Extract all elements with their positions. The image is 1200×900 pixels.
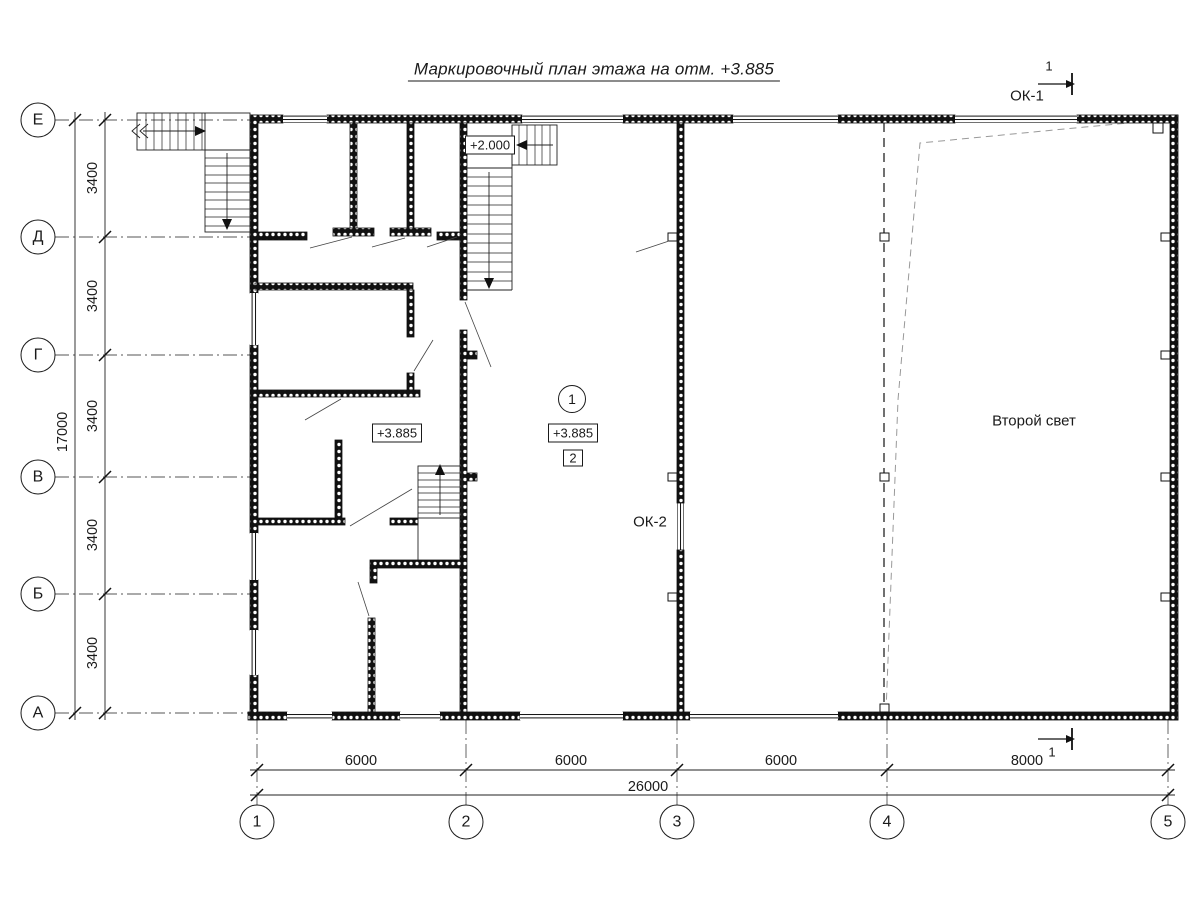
- pilasters: [668, 123, 1170, 712]
- room-marker-square: 2: [563, 450, 583, 467]
- axis-row-b: Б: [21, 577, 56, 612]
- dim-left-total: 17000: [56, 412, 71, 452]
- axis-col-4: 4: [870, 805, 905, 840]
- dim-bottom-seg-4: 8000: [1011, 754, 1043, 769]
- dim-left-seg-1: 3400: [86, 162, 101, 194]
- axis-row-g: Г: [21, 338, 56, 373]
- second-light-label: Второй свет: [992, 414, 1076, 429]
- elevation-mark-landing: +2.000: [465, 136, 515, 155]
- axis-col-5: 5: [1151, 805, 1186, 840]
- window-type-label-ok1: ОК-1: [1010, 89, 1044, 104]
- dim-left-seg-4: 3400: [86, 519, 101, 551]
- stair-direction-arrow: [222, 219, 232, 230]
- axis-col-3: 3: [660, 805, 695, 840]
- room-marker-circle: 1: [558, 385, 586, 413]
- floor-plan-sheet: Маркировочный план этажа на отм. +3.885 …: [0, 0, 1200, 900]
- stair-direction-arrow: [484, 278, 494, 289]
- elevation-mark-left: +3.885: [372, 424, 422, 443]
- axis-col-1: 1: [240, 805, 275, 840]
- dim-left-seg-5: 3400: [86, 637, 101, 669]
- dim-bottom-seg-3: 6000: [765, 754, 797, 769]
- section-number-top: 1: [1045, 60, 1052, 73]
- elevation-mark-center: +3.885: [548, 424, 598, 443]
- door-swings: [305, 237, 669, 616]
- grid-axes-lines: [55, 120, 1168, 805]
- drawing-title: Маркировочный план этажа на отм. +3.885: [408, 61, 780, 82]
- dimension-lines: [75, 112, 1175, 795]
- axis-row-a: А: [21, 696, 56, 731]
- dim-bottom-total: 26000: [628, 780, 668, 795]
- stair-direction-arrow: [195, 126, 206, 136]
- dim-bottom-seg-2: 6000: [555, 754, 587, 769]
- dim-left-seg-3: 3400: [86, 400, 101, 432]
- axis-row-d: Д: [21, 220, 56, 255]
- axis-col-2: 2: [449, 805, 484, 840]
- window-type-label-ok2: ОК-2: [633, 515, 667, 530]
- section-mark-bottom: [1038, 728, 1075, 750]
- axis-row-v: В: [21, 460, 56, 495]
- section-number-bottom: 1: [1048, 746, 1055, 759]
- axis-row-e: Е: [21, 103, 56, 138]
- dim-left-seg-2: 3400: [86, 280, 101, 312]
- interior-walls: [250, 123, 684, 712]
- dim-bottom-seg-1: 6000: [345, 754, 377, 769]
- central-stair: [418, 464, 462, 560]
- exterior-entrance-stair: [132, 113, 250, 232]
- stair-direction-arrow: [516, 140, 527, 150]
